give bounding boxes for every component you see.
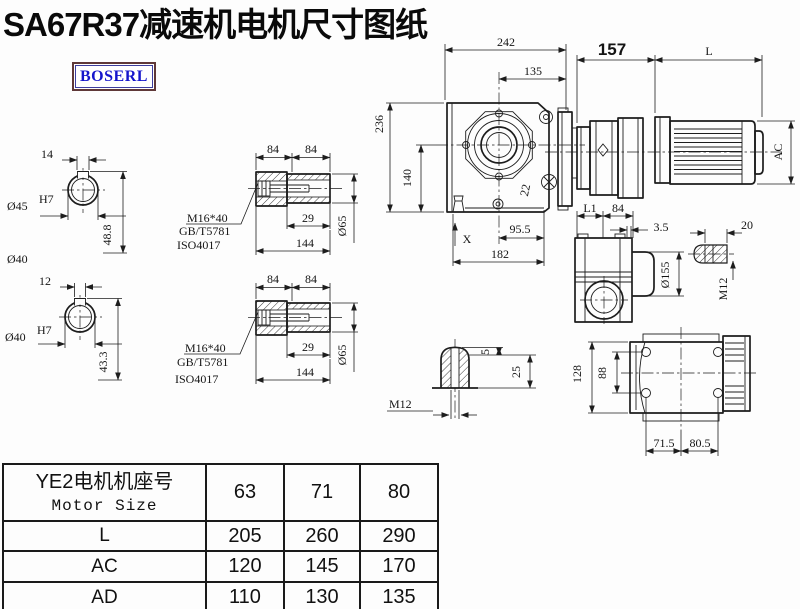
table-row-L: L 205 260 290 <box>3 521 438 551</box>
label-std1-lower: GB/T5781 <box>177 355 228 369</box>
dim-total-len-upper: 144 <box>296 236 314 250</box>
dim-bore-tol-upper: H7 <box>39 192 54 206</box>
dim-bore-lower: Ø40 <box>5 330 26 344</box>
dim-flange-width: 128 <box>570 365 584 383</box>
dim-bushing-len-b-lower: 84 <box>305 272 317 286</box>
dim-bolt-span: 88 <box>595 367 609 379</box>
dim-center-to-face: 135 <box>524 64 542 78</box>
dim-thread-len-upper: 29 <box>302 211 314 225</box>
value-AC-63: 120 <box>206 551 284 582</box>
hollow-shaft-bore-lower-view: 12 Ø40 H7 43.3 <box>5 274 122 380</box>
dim-bushing-dia-lower: Ø65 <box>335 345 349 366</box>
dim-pitch-left: 71.5 <box>654 436 675 450</box>
label-std2-upper: ISO4017 <box>177 238 220 252</box>
page-title: SA67R37减速机电机尺寸图纸 <box>3 0 427 46</box>
drawing-sheet: 14 Ø45 H7 48.8 Ø40 <box>0 0 800 609</box>
brand-logo-text: BOSERL <box>75 65 153 88</box>
value-AC-71: 145 <box>284 551 360 582</box>
dim-tap-detail: M12 <box>389 397 412 411</box>
dim-center-height: 140 <box>400 169 414 187</box>
dim-motor-dia: AC <box>771 144 785 161</box>
bushing-upper-view: 84 84 29 144 Ø65 M16*40 GB/T5781 ISO4017 <box>177 142 358 255</box>
dim-depth-lower: 43.3 <box>96 352 110 373</box>
dim-84-side: 84 <box>612 201 624 215</box>
dim-pitch-right: 80.5 <box>690 436 711 450</box>
value-AC-80: 170 <box>360 551 438 582</box>
size-col-80: 80 <box>360 464 438 521</box>
motor-size-header-en: Motor Size <box>4 495 205 517</box>
size-col-63: 63 <box>206 464 284 521</box>
dim-foot-height: 22 <box>517 183 533 198</box>
label-bolt-upper: M16*40 <box>187 211 228 225</box>
dim-key-width-lower: 12 <box>39 274 51 288</box>
dim-depth-upper: 48.8 <box>100 225 114 246</box>
dim-step: 3.5 <box>654 220 669 234</box>
motor-size-header-cn: YE2电机机座号 <box>4 469 205 495</box>
table-row-AC: AC 120 145 170 <box>3 551 438 582</box>
label-outer-dia: Ø40 <box>7 252 28 266</box>
label-std1-upper: GB/T5781 <box>179 224 230 238</box>
value-L-80: 290 <box>360 521 438 551</box>
dim-bushing-len-a-upper: 84 <box>267 142 279 156</box>
dim-position-mark: X <box>463 232 472 246</box>
dim-bushing-len-b-upper: 84 <box>305 142 317 156</box>
dim-base-width: 182 <box>491 247 509 261</box>
dim-depth-detail: 25 <box>509 366 523 378</box>
shaft-end-detail-view: 5 25 M12 <box>387 339 536 421</box>
dim-bushing-len-a-lower: 84 <box>267 272 279 286</box>
dim-bushing-dia-upper: Ø65 <box>335 216 349 237</box>
value-AD-80: 135 <box>360 582 438 609</box>
row-label-AC: AC <box>3 551 206 582</box>
hollow-shaft-bore-upper-view: 14 Ø45 H7 48.8 Ø40 <box>7 147 127 266</box>
label-std2-lower: ISO4017 <box>175 372 218 386</box>
side-view-gear-unit: L1 84 3.5 Ø155 <box>575 201 753 324</box>
value-AD-71: 130 <box>284 582 360 609</box>
dim-thread-len-lower: 29 <box>302 340 314 354</box>
dim-bore-tol-lower: H7 <box>37 323 52 337</box>
dim-total-len-lower: 144 <box>296 365 314 379</box>
dim-tap-side: M12 <box>716 278 730 301</box>
dim-motor-len: L <box>705 44 712 58</box>
value-L-63: 205 <box>206 521 284 551</box>
bushing-lower-view: 84 84 29 144 Ø65 M16*40 GB/T5781 ISO4017 <box>175 272 358 386</box>
label-bolt-lower: M16*40 <box>185 341 226 355</box>
dim-overall-height: 236 <box>372 115 386 133</box>
front-view-gearmotor: 22 <box>372 35 795 266</box>
size-col-71: 71 <box>284 464 360 521</box>
row-label-L: L <box>3 521 206 551</box>
row-label-AD: AD <box>3 582 206 609</box>
table-row-AD: AD 110 130 135 <box>3 582 438 609</box>
value-AD-63: 110 <box>206 582 284 609</box>
dim-flange-dia: Ø155 <box>658 262 672 289</box>
dim-overall-width: 242 <box>497 35 515 49</box>
value-L-71: 260 <box>284 521 360 551</box>
dim-hub-len: 20 <box>741 218 753 232</box>
table-header-row: YE2电机机座号 Motor Size 63 71 80 <box>3 464 438 521</box>
motor-size-header: YE2电机机座号 Motor Size <box>3 464 206 521</box>
dim-bore-upper: Ø45 <box>7 199 28 213</box>
dim-adapter-len: 157 <box>598 40 626 59</box>
brand-logo: BOSERL <box>72 62 156 91</box>
dim-center-to-edge: 95.5 <box>510 222 531 236</box>
top-view-gear-unit: 128 88 71.5 80.5 <box>570 327 757 456</box>
dim-key-width-upper: 14 <box>41 147 53 161</box>
dim-l1: L1 <box>583 201 596 215</box>
dim-tip: 5 <box>478 349 492 355</box>
motor-size-table: YE2电机机座号 Motor Size 63 71 80 L 205 260 2… <box>2 463 439 609</box>
